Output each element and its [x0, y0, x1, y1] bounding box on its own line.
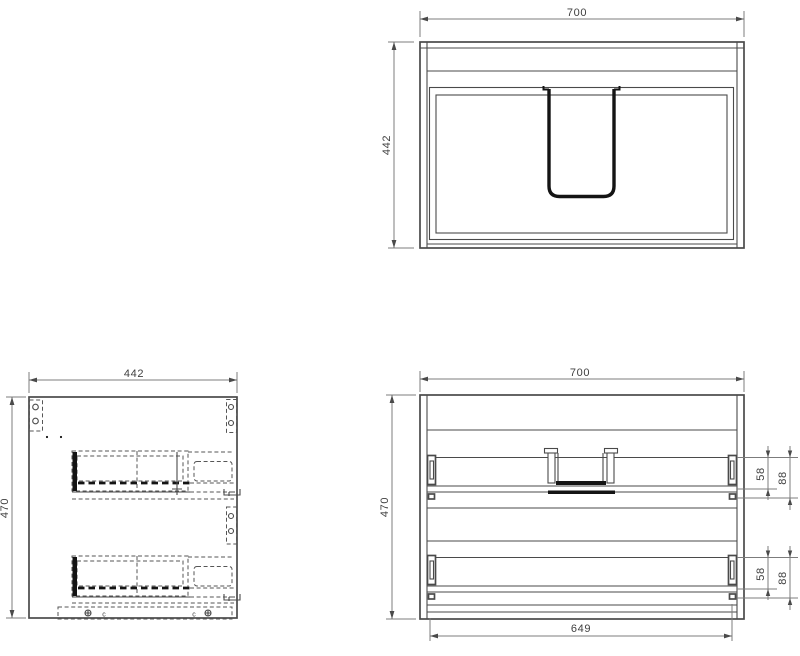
front-height-label: 442	[381, 135, 393, 155]
fastener-strip-top-right	[227, 400, 237, 433]
front-view: 700 442	[381, 7, 744, 248]
carcass-height-dimension: 470	[379, 395, 416, 619]
front-width-dimension: 700	[420, 7, 744, 37]
siphon-cutout	[544, 86, 620, 197]
carcass-height-label: 470	[379, 497, 391, 517]
bottom-slide-clearance-label: 88	[777, 571, 789, 584]
top-slide-dimensions: 58 88	[737, 446, 798, 510]
cabinet-drawing-svg: 700 442 442	[0, 0, 800, 656]
side-view: 442 470	[0, 368, 240, 619]
front-height-dimension: 442	[381, 42, 414, 248]
side-depth-dimension: 442	[29, 368, 237, 393]
bottom-drawer-runners: 58 88	[427, 546, 798, 610]
front-cabinet-body	[420, 42, 744, 248]
carcass-view: 700 470	[379, 367, 798, 641]
front-width-label: 700	[567, 7, 587, 19]
hinge-plate-top-left	[30, 400, 63, 438]
side-height-dimension: 470	[0, 397, 26, 618]
drawer-slide-lower	[72, 556, 240, 603]
carcass-inner-width-dimension: 649	[430, 604, 732, 641]
top-slide-clearance-label: 88	[777, 471, 789, 484]
clip-mark-left: c	[102, 612, 106, 619]
drawer-slide-upper	[72, 451, 240, 499]
carcass-width-label: 700	[570, 367, 590, 379]
side-panel-outline	[29, 397, 237, 618]
bottom-slide-offset-label: 58	[755, 567, 767, 580]
carcass-inner-width-label: 649	[571, 623, 591, 635]
carcass-width-dimension: 700	[420, 367, 744, 392]
technical-drawing-sheet: 700 442 442	[0, 0, 800, 656]
bottom-slide-dimensions: 58 88	[737, 546, 798, 610]
siphon-recess	[545, 449, 618, 495]
top-drawer-runners: 58 88	[427, 446, 798, 510]
fastener-strip-mid-right	[227, 507, 237, 544]
top-slide-offset-label: 58	[755, 467, 767, 480]
side-depth-label: 442	[124, 368, 144, 380]
side-height-label: 470	[0, 498, 11, 518]
carcass-body	[420, 395, 744, 619]
clip-mark-right: c	[192, 612, 196, 619]
